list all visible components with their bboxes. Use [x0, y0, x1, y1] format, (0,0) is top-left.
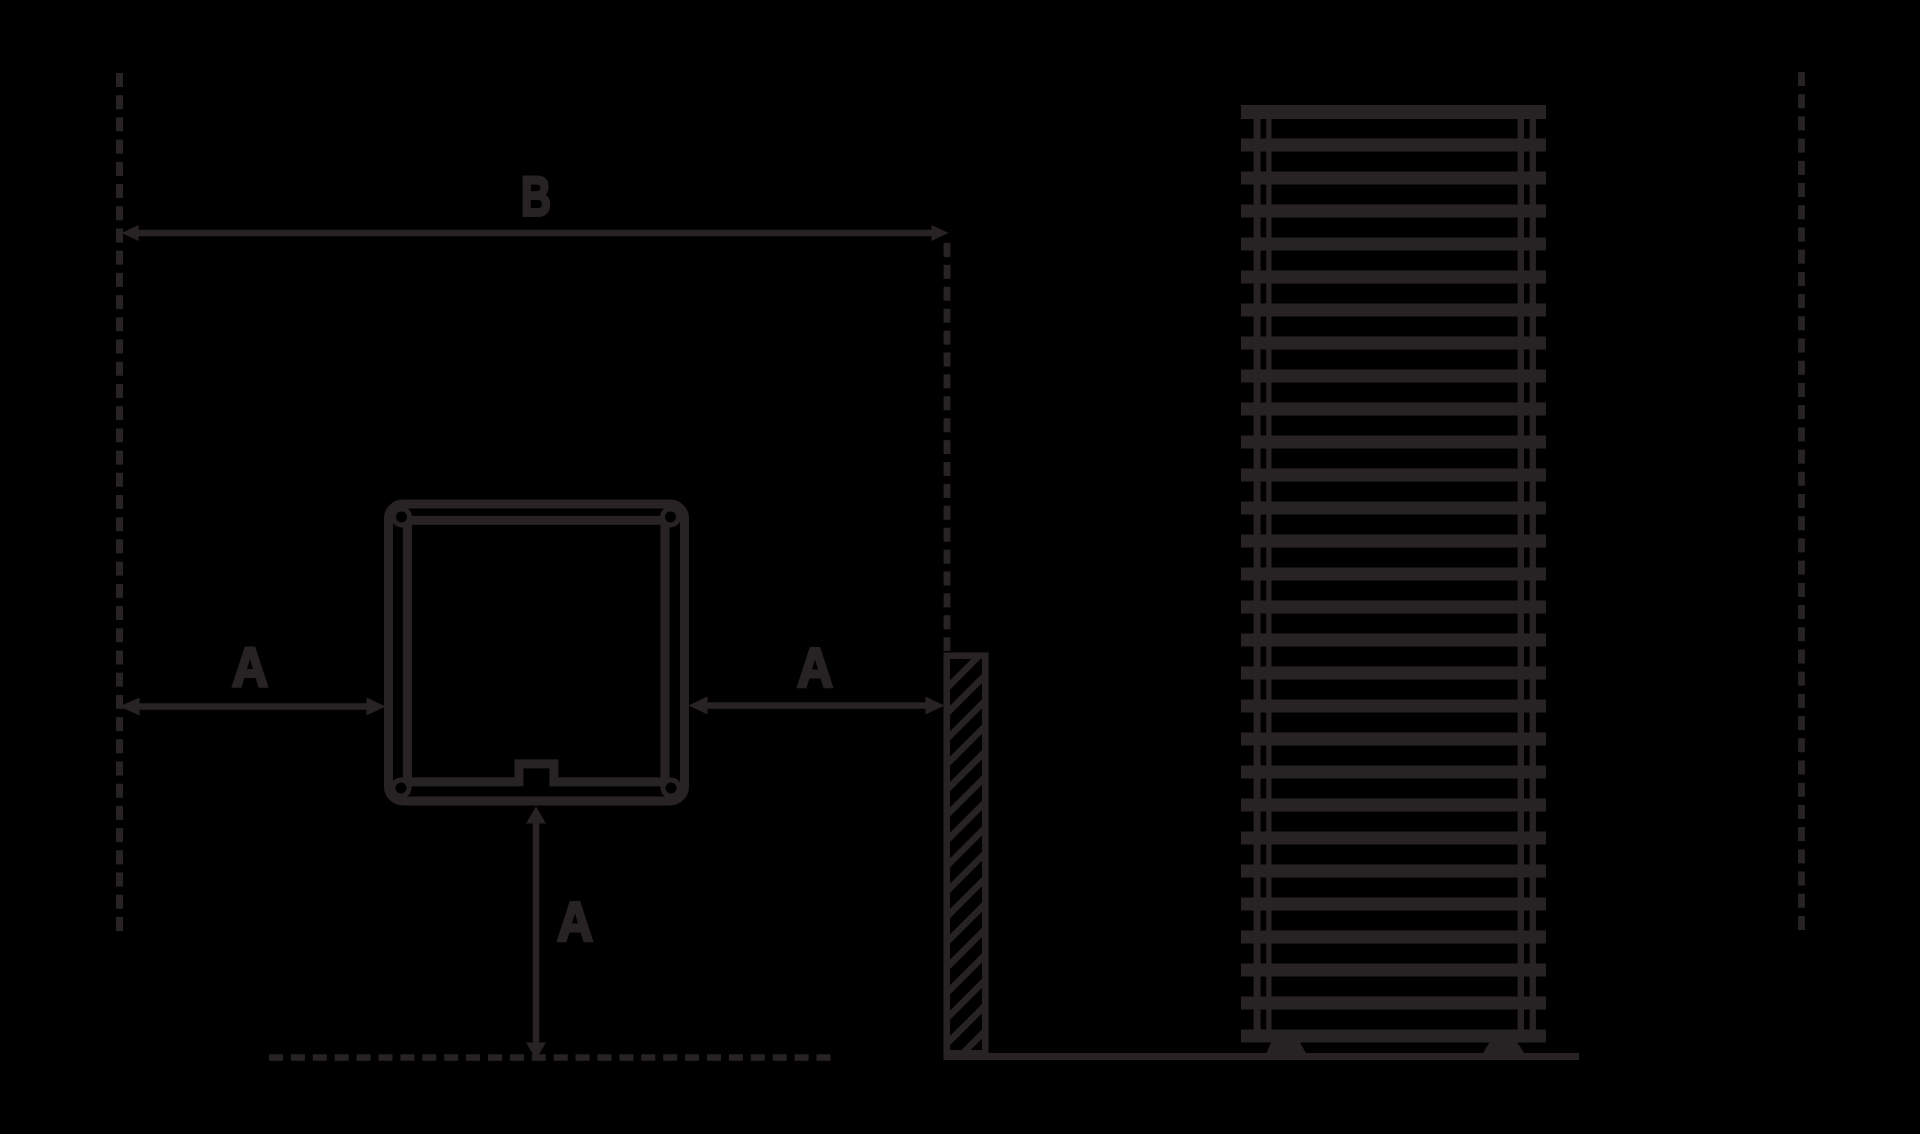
svg-text:A: A [797, 637, 833, 699]
svg-text:A: A [557, 891, 593, 953]
svg-text:B: B [521, 166, 551, 228]
svg-text:A: A [232, 637, 268, 699]
